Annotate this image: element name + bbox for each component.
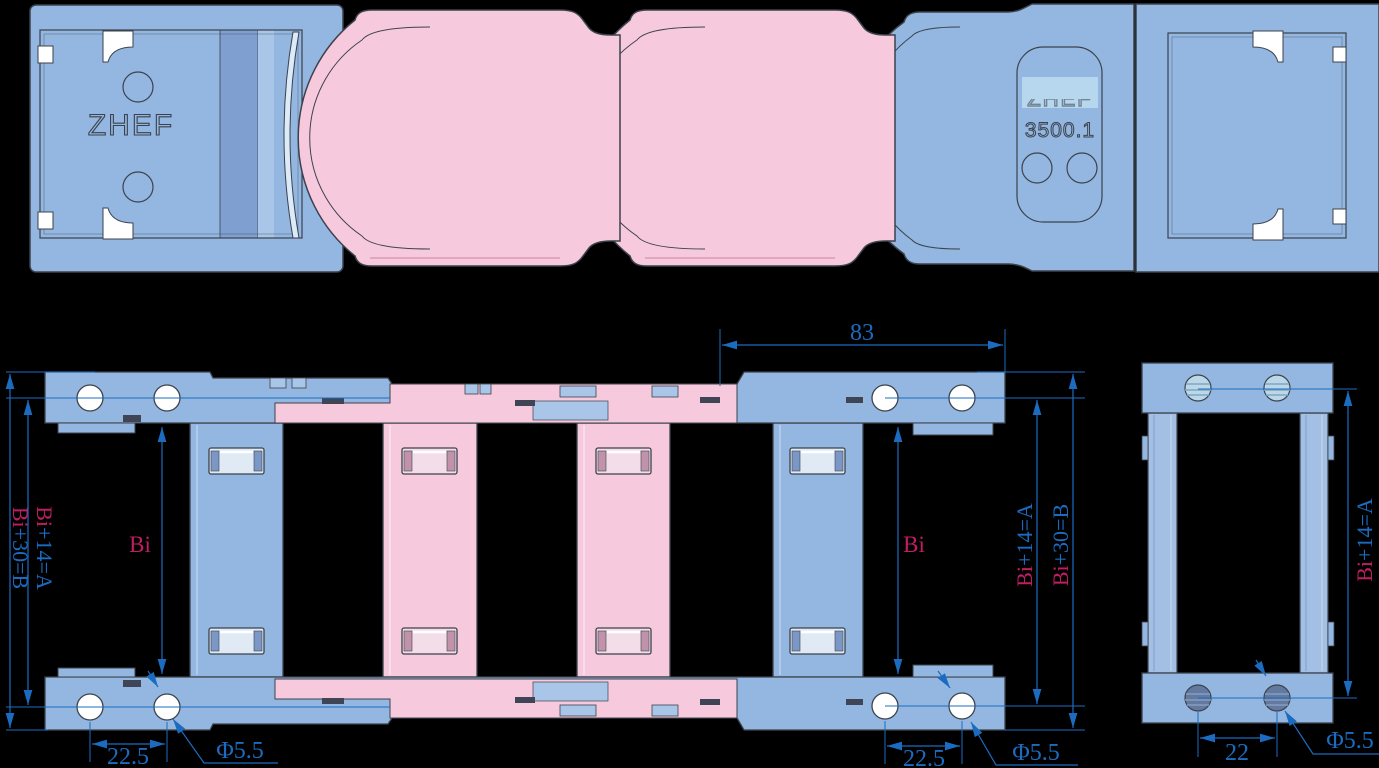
end-view [1142,363,1334,723]
side-view [45,372,1005,730]
dim-spacing-label: 22.5 [903,746,945,768]
blue-link-plate [190,423,283,677]
link-plate-window [209,448,264,474]
end-top-bar [1142,363,1333,413]
pink-link-plate [383,423,477,677]
model-number: 3500.1 [1025,119,1095,142]
plan-right-bracket [1136,4,1379,272]
link-plate-window [596,628,651,654]
blue-link-plate [773,423,863,677]
side-link-plates [190,423,863,677]
plan-left-bracket: ZHEF [30,5,343,272]
plan-view: ZHEF ZHEF 3500.1 [30,4,1379,272]
dim-pitch-label: 83 [850,320,874,346]
dim-b-label: Bi+30=B [1048,504,1073,586]
drawing-canvas: ZHEF ZHEF 3500.1 [0,0,1379,768]
dim-spacing-label: 22 [1225,740,1249,766]
link-plate-window [402,448,457,474]
link-plate-window [596,448,651,474]
dim-b-label: Bi+30=B [8,507,33,589]
dim-a-label: Bi+14=A [1352,498,1377,582]
link-plate-window [402,628,457,654]
plan-pink-link-2 [573,10,895,266]
dim-spacing-label: 22.5 [107,744,149,768]
dim-hole-dia-label: Φ5.5 [216,738,264,764]
dim-bi-label: Bi [903,532,925,557]
drag-chain-drawing: ZHEF ZHEF 3500.1 [0,0,1379,768]
dim-bi-label: Bi [129,532,151,557]
link-plate-window [790,628,845,654]
brand-logo: ZHEF [88,109,174,142]
link-plate-window [790,448,845,474]
dim-a-label: Bi+14=A [1012,503,1037,587]
pink-link-plate [577,423,670,677]
link-plate-window [209,628,264,654]
dim-hole-dia-label: Φ5.5 [1326,728,1374,754]
plan-pink-link-1 [298,10,620,266]
dim-hole-dia-label: Φ5.5 [1012,740,1060,766]
dim-a-label: Bi+14=A [32,506,57,590]
